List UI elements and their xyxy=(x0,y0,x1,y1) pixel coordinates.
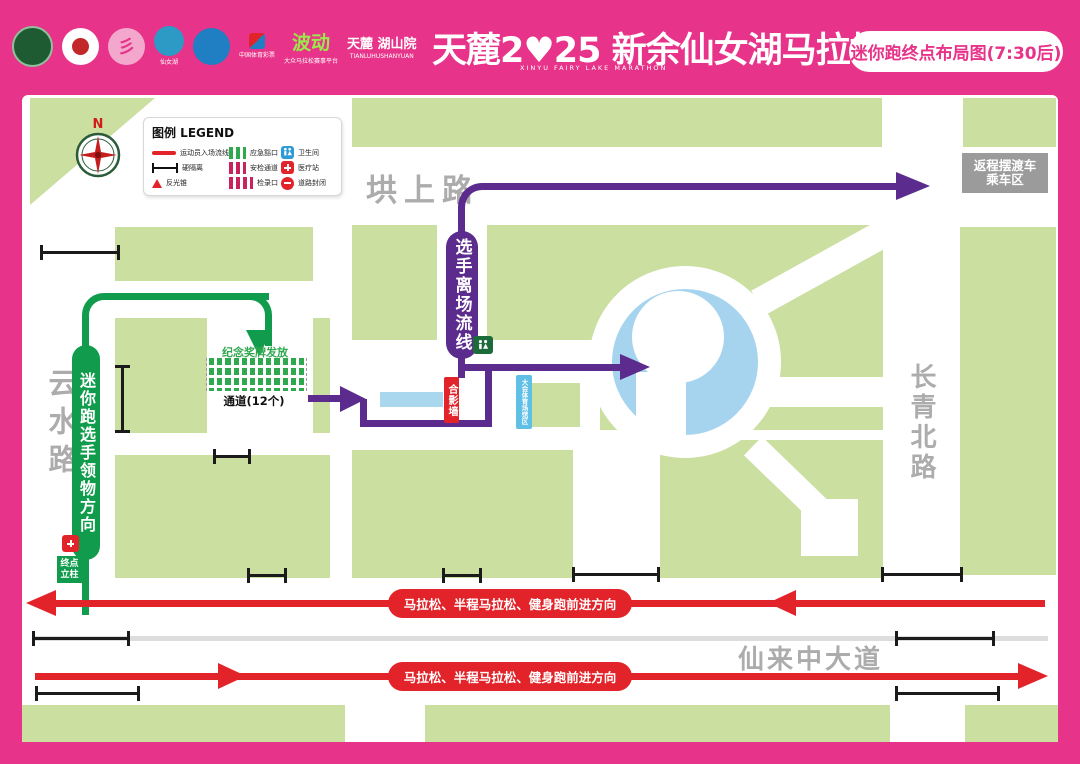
medal-channel xyxy=(299,358,304,391)
fairy-lake-logo-label: 仙女湖 xyxy=(160,57,178,66)
shuttle-area-box: 返程摆渡车 乘车区 xyxy=(962,153,1048,193)
bodong-wordmark: 波动 xyxy=(292,28,330,55)
traffic-cone-icon xyxy=(152,179,162,188)
fairy-lake-icon xyxy=(154,26,184,56)
stand-label: 大会体育场馆区 xyxy=(516,375,532,429)
hard-barrier xyxy=(32,637,130,640)
hard-barrier xyxy=(247,574,287,577)
legend-item-checkin: 检录口 xyxy=(229,176,281,191)
exit-route-zig-h2 xyxy=(360,420,492,427)
medal-channel xyxy=(291,358,296,391)
tianlu-wordmark: 天麓 湖山院 xyxy=(347,33,417,52)
hard-barrier xyxy=(35,692,140,695)
sponsor-logo-row: 彡 仙女湖 中国体育彩票 波动 大众马拉松赛事平台 天麓 湖山院 TIANLUH… xyxy=(12,14,417,78)
legend-item-security: 安检通道 xyxy=(229,160,281,175)
lawn-block xyxy=(115,227,313,281)
medal-channel xyxy=(242,358,247,391)
event-title-english: XINYU FAIRY LAKE MARATHON xyxy=(520,64,667,72)
legend-item-toilet: 卫生间 xyxy=(281,145,333,160)
lawn-block xyxy=(352,98,882,147)
sports-lottery-label: 中国体育彩票 xyxy=(239,50,275,59)
runner-figure-logo: 彡 xyxy=(108,28,145,65)
hard-barrier xyxy=(881,573,963,576)
tianlu-sub-label: TIANLUHUSHANYUAN xyxy=(350,53,414,60)
bodong-logo: 波动 大众马拉松赛事平台 xyxy=(284,28,338,65)
compass-north-label: N xyxy=(88,117,108,132)
lawn-block xyxy=(352,225,437,340)
hard-barrier xyxy=(213,455,251,458)
legend-box: 图例 LEGEND 运动员入场流线 硬隔离 反光锥 应急豁口 安检通道 检录口 … xyxy=(143,117,342,196)
legend-item-road-closed: 道路封闭 xyxy=(281,176,333,191)
medical-cross-icon xyxy=(281,161,294,174)
marathon-arrow-right-end xyxy=(1018,663,1048,689)
map-name-badge: 迷你跑终点布局图(7:30后) xyxy=(849,31,1063,72)
road-gap xyxy=(890,705,965,742)
hard-barrier xyxy=(572,573,660,576)
pond-opening xyxy=(636,372,686,436)
lawn-block-small xyxy=(532,383,580,427)
h-barrier-icon xyxy=(152,163,178,173)
restroom-icon xyxy=(473,336,493,354)
exit-route-zig-v2 xyxy=(485,368,492,427)
lawn-block xyxy=(352,450,573,578)
medal-channel xyxy=(274,358,279,391)
venue-map: 图例 LEGEND 运动员入场流线 硬隔离 反光锥 应急豁口 安检通道 检录口 … xyxy=(22,95,1058,742)
pickup-pill: 迷你跑选手领物方向 xyxy=(72,345,100,560)
compass-rose-icon xyxy=(74,131,122,179)
marathon-arrow-right-mid xyxy=(218,663,246,689)
marathon-direction-pill: 马拉松、半程马拉松、健身跑前进方向 xyxy=(388,589,632,618)
stage-block xyxy=(380,392,443,407)
road-label-bottom: 仙来中大道 xyxy=(738,639,883,676)
sports-lottery-icon xyxy=(249,33,265,49)
marathon-direction-pill: 马拉松、半程马拉松、健身跑前进方向 xyxy=(388,662,632,691)
event-logo xyxy=(193,28,230,65)
legend-title: 图例 LEGEND xyxy=(152,124,333,141)
medal-channel xyxy=(283,358,288,391)
exit-route-branch-arrow xyxy=(620,354,650,380)
photo-wall-label: 合影墙 xyxy=(444,377,459,423)
hard-barrier xyxy=(40,251,120,254)
lawn-block xyxy=(313,318,330,433)
restroom-icon xyxy=(281,146,294,159)
radial-path-middle xyxy=(770,377,885,407)
road-gap xyxy=(345,705,425,742)
hard-barrier xyxy=(895,637,995,640)
medal-channel xyxy=(250,358,255,391)
legend-item-entry-flow: 运动员入场流线 xyxy=(152,145,229,160)
road-label-right: 长青北路 xyxy=(903,363,940,483)
finish-pillar-box: 终点 立柱 xyxy=(57,556,82,583)
emergency-gap-icon xyxy=(229,147,246,159)
marathon-arrow-left-end xyxy=(26,590,56,616)
legend-item-cone: 反光锥 xyxy=(152,176,229,191)
hard-barrier xyxy=(895,692,1000,695)
security-channel-icon xyxy=(229,162,246,174)
legend-item-emergency-gap: 应急豁口 xyxy=(229,145,281,160)
medal-channel xyxy=(266,358,271,391)
hard-barrier xyxy=(442,574,482,577)
legend-item-hard-barrier: 硬隔离 xyxy=(152,160,229,175)
lawn-block xyxy=(960,227,1056,575)
medal-channel xyxy=(209,358,214,391)
exit-route-main xyxy=(458,183,907,378)
medal-channel xyxy=(234,358,239,391)
medal-channel xyxy=(225,358,230,391)
flow-line-icon xyxy=(152,151,176,155)
marathon-arrow-left-mid xyxy=(768,590,796,616)
medal-channel xyxy=(217,358,222,391)
medical-cross-icon xyxy=(62,535,79,552)
checkin-gate-icon xyxy=(229,177,253,189)
tianlu-logo: 天麓 湖山院 TIANLUHUSHANYUAN xyxy=(347,33,417,60)
exit-route-arrow-right xyxy=(896,172,930,200)
no-entry-icon xyxy=(281,177,294,190)
city-emblem-logo xyxy=(12,26,53,67)
fairy-lake-logo: 仙女湖 xyxy=(154,26,184,66)
bodong-sub-label: 大众马拉松赛事平台 xyxy=(284,56,338,65)
lawn-block xyxy=(963,98,1056,147)
plaza-square xyxy=(801,499,858,556)
medal-channel xyxy=(258,358,263,391)
organizer-logo xyxy=(62,28,99,65)
sports-lottery-logo: 中国体育彩票 xyxy=(239,33,275,59)
medal-channels xyxy=(206,358,307,391)
hard-barrier xyxy=(121,365,124,433)
exit-route-zig-h1 xyxy=(308,395,342,402)
channel-count-label: 通道(12个) xyxy=(214,393,294,409)
marathon-layout-poster: 彡 仙女湖 中国体育彩票 波动 大众马拉松赛事平台 天麓 湖山院 TIANLUH… xyxy=(0,0,1080,764)
legend-item-medical: 医疗站 xyxy=(281,160,333,175)
